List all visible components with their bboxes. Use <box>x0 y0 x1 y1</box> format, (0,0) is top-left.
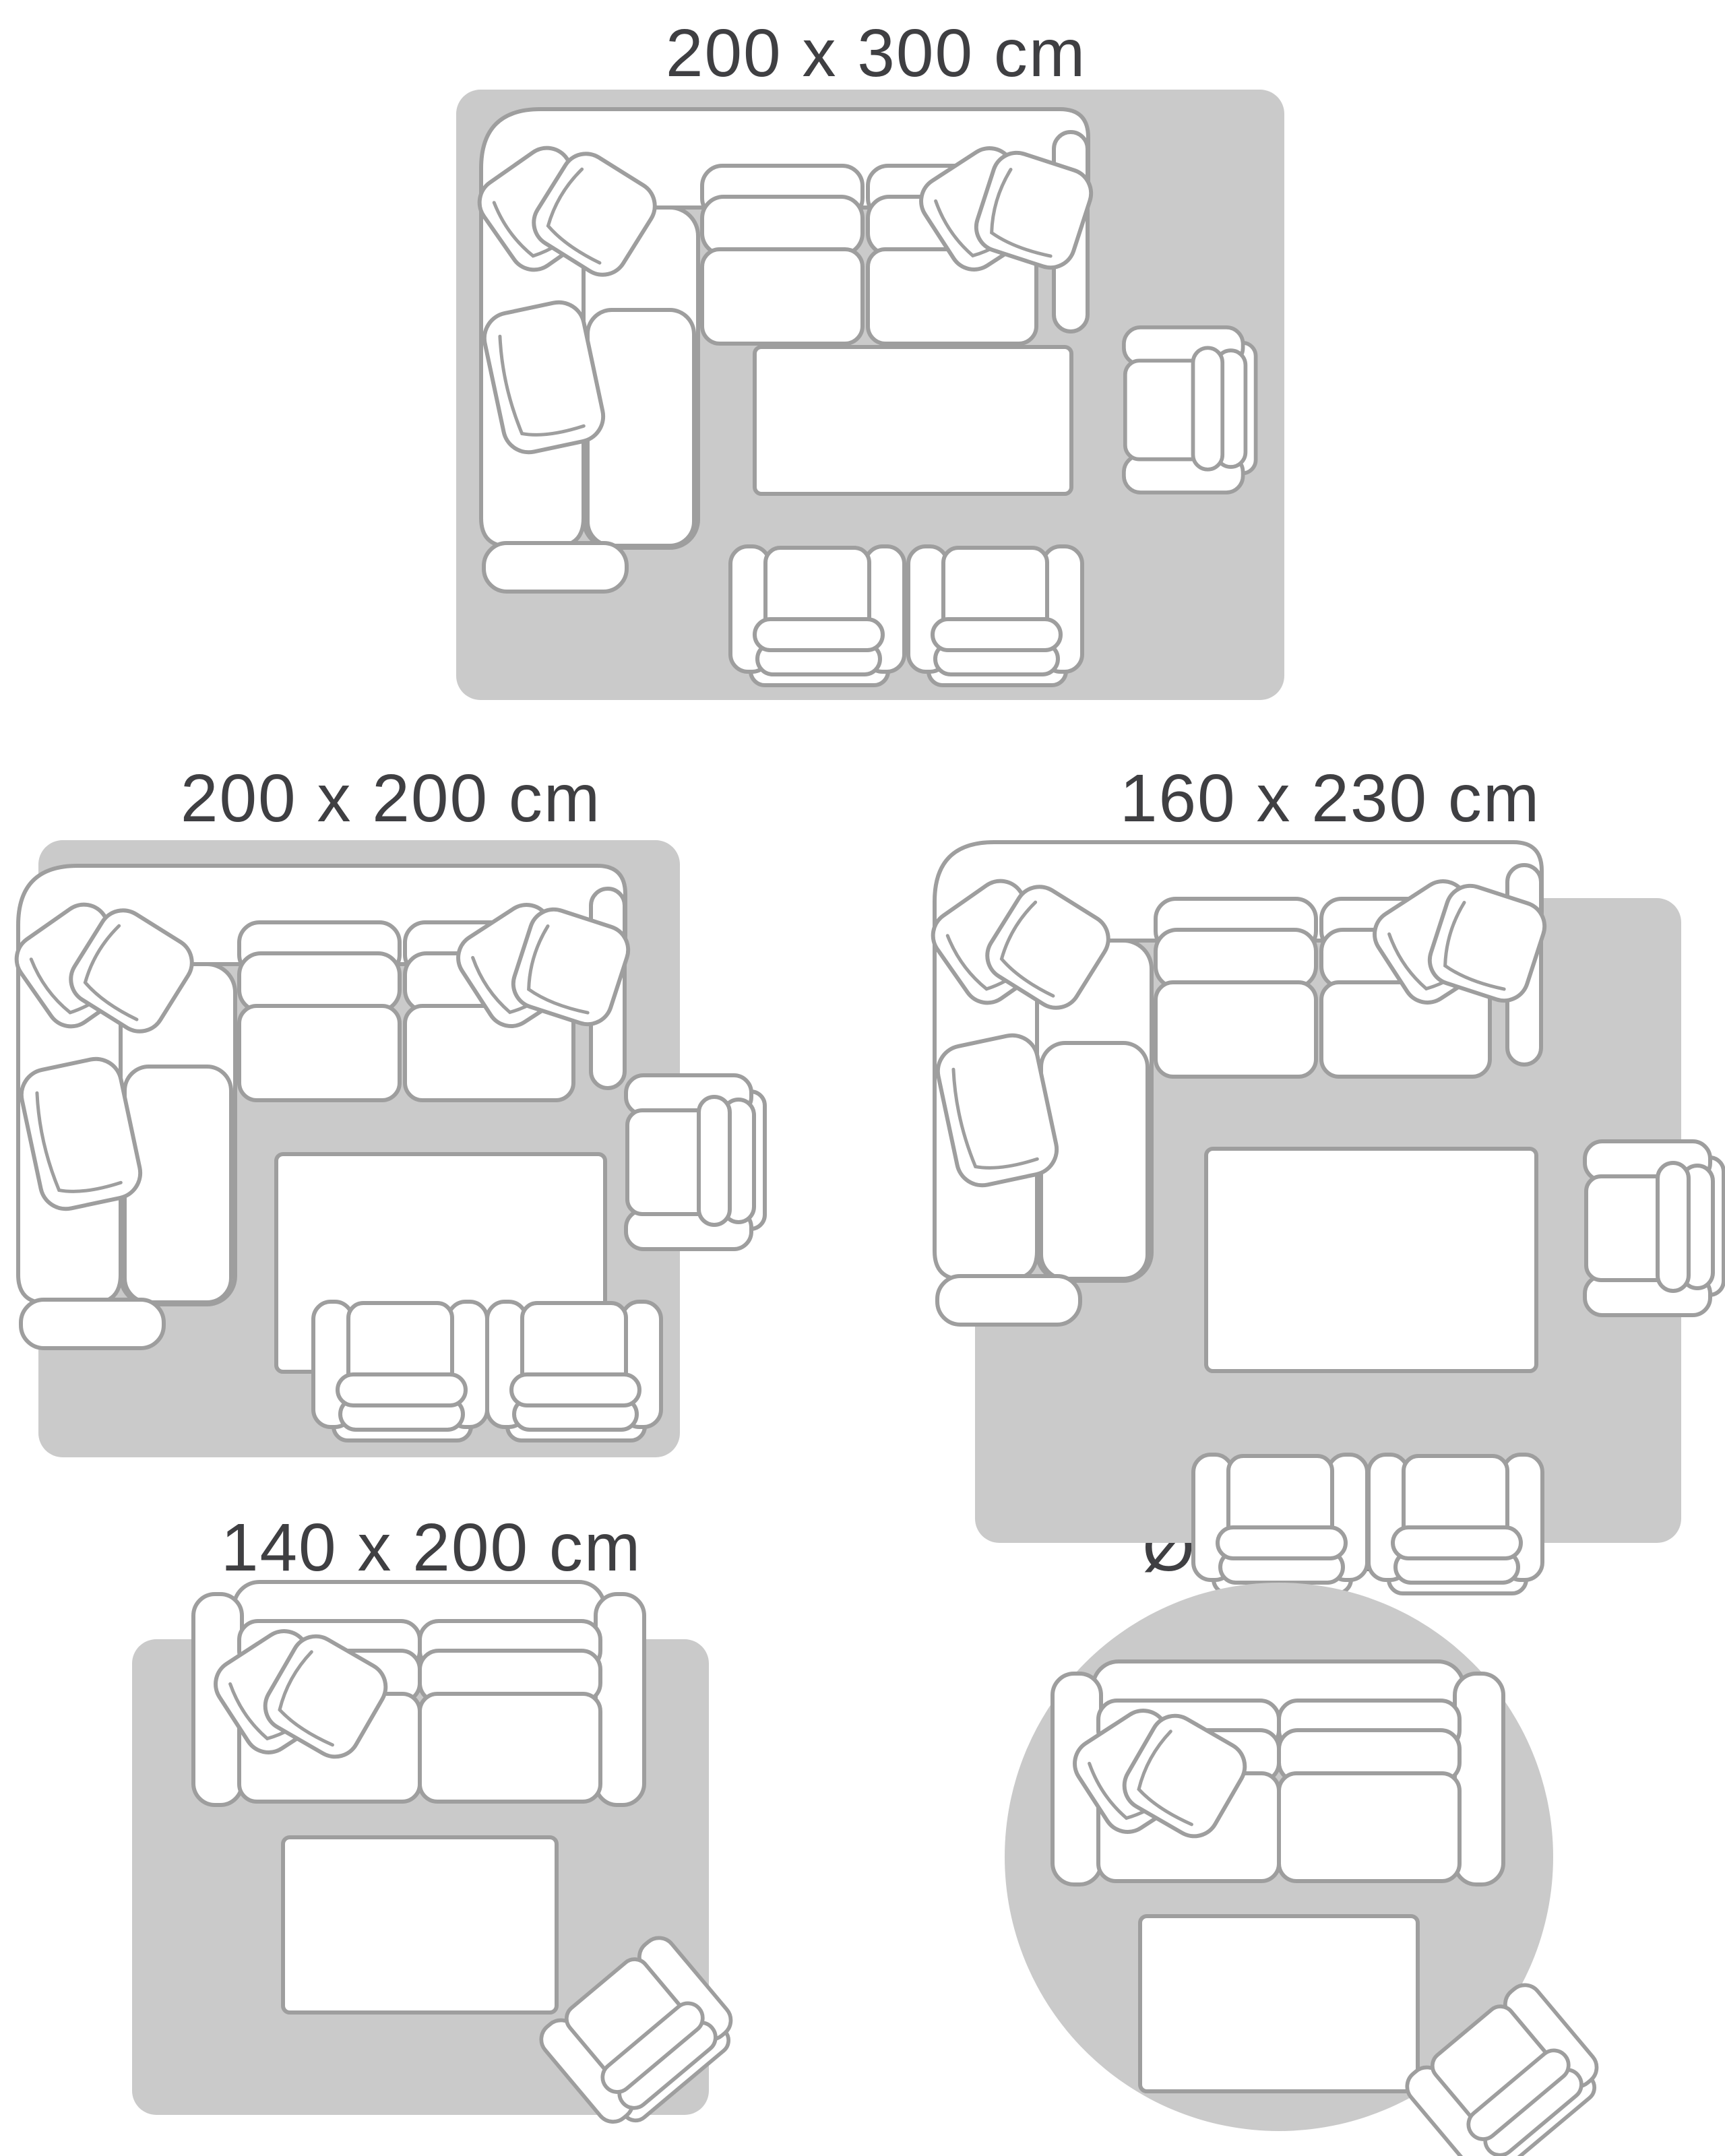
two-seater-sofa <box>1053 1661 1503 1884</box>
coffee-table <box>1206 1149 1536 1371</box>
diagram-diameter-140 <box>1005 1583 1612 2156</box>
club-chair <box>908 546 1082 685</box>
coffee-table <box>283 1837 557 2012</box>
club-chair <box>487 1302 661 1440</box>
coffee-table <box>755 347 1071 494</box>
side-armchair <box>1124 327 1256 493</box>
club-chair <box>1369 1455 1542 1593</box>
club-chair <box>1193 1455 1367 1593</box>
side-armchair <box>626 1075 765 1249</box>
layout-illustrations <box>0 0 1725 2156</box>
diagram-200x300 <box>456 90 1284 700</box>
diagram-160x230 <box>924 842 1724 1593</box>
club-chair <box>730 546 904 685</box>
club-chair <box>313 1302 487 1440</box>
coffee-table <box>1140 1916 1418 2091</box>
diagram-140x200 <box>132 1582 746 2138</box>
two-seater-sofa <box>193 1582 644 1805</box>
rug-size-guide: 200 x 300 cm 200 x 200 cm 160 x 230 cm 1… <box>0 0 1725 2156</box>
diagram-200x200 <box>7 840 765 1457</box>
side-armchair <box>1585 1141 1724 1315</box>
